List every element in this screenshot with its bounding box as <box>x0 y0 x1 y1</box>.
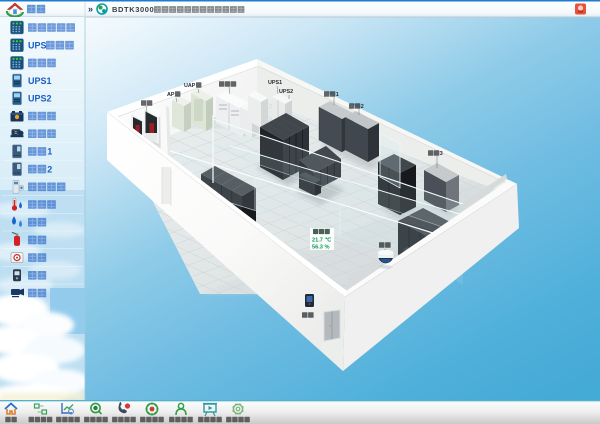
svg-text:UPS2: UPS2 <box>28 94 52 104</box>
svg-text:UAP: UAP <box>184 83 196 89</box>
svg-text:2: 2 <box>361 104 364 110</box>
svg-text:UPS1: UPS1 <box>268 80 282 86</box>
svg-text:21.7: 21.7 <box>312 238 323 244</box>
svg-text:2: 2 <box>47 164 52 174</box>
svg-text:56.3 %: 56.3 % <box>312 245 329 251</box>
svg-text:1: 1 <box>336 92 339 98</box>
svg-text:»: » <box>88 4 93 14</box>
svg-text:UPS2: UPS2 <box>279 89 293 95</box>
svg-text:1: 1 <box>47 147 52 157</box>
svg-text:BDTK3000: BDTK3000 <box>112 5 154 14</box>
svg-text:℃: ℃ <box>325 237 331 244</box>
svg-text:3: 3 <box>440 151 443 157</box>
svg-text:UPS: UPS <box>28 40 47 50</box>
svg-text:AP: AP <box>167 92 175 98</box>
svg-text:UPS1: UPS1 <box>28 76 52 86</box>
